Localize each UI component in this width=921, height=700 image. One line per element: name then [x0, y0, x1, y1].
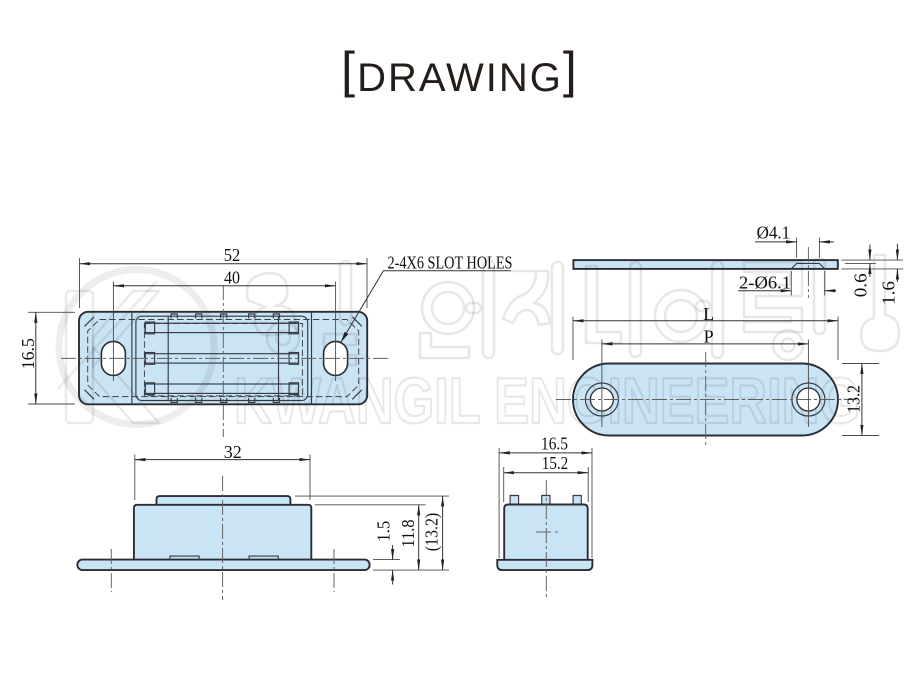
- svg-text:52: 52: [224, 245, 241, 265]
- svg-text:Ø4.1: Ø4.1: [757, 223, 791, 243]
- svg-text:L: L: [703, 304, 714, 324]
- svg-text:16.5: 16.5: [18, 338, 38, 369]
- svg-text:0.6: 0.6: [851, 273, 871, 297]
- svg-text:1.6: 1.6: [879, 281, 899, 305]
- svg-text:15.2: 15.2: [542, 453, 569, 473]
- svg-text:KWANGIL ENGINEERING: KWANGIL ENGINEERING: [234, 364, 860, 437]
- svg-text:32: 32: [224, 442, 242, 462]
- svg-text:P: P: [704, 327, 714, 347]
- svg-text:13.2: 13.2: [843, 385, 863, 413]
- svg-text:40: 40: [224, 267, 240, 287]
- svg-text:16.5: 16.5: [541, 433, 568, 453]
- svg-text:11.8: 11.8: [398, 520, 418, 548]
- svg-text:2-4X6 SLOT HOLES: 2-4X6 SLOT HOLES: [388, 253, 513, 273]
- svg-text:1.5: 1.5: [374, 521, 394, 542]
- svg-text:2-Ø6.1: 2-Ø6.1: [739, 273, 791, 293]
- svg-text:(13.2): (13.2): [422, 513, 443, 552]
- svg-text:[DRAWING]: [DRAWING]: [341, 42, 579, 100]
